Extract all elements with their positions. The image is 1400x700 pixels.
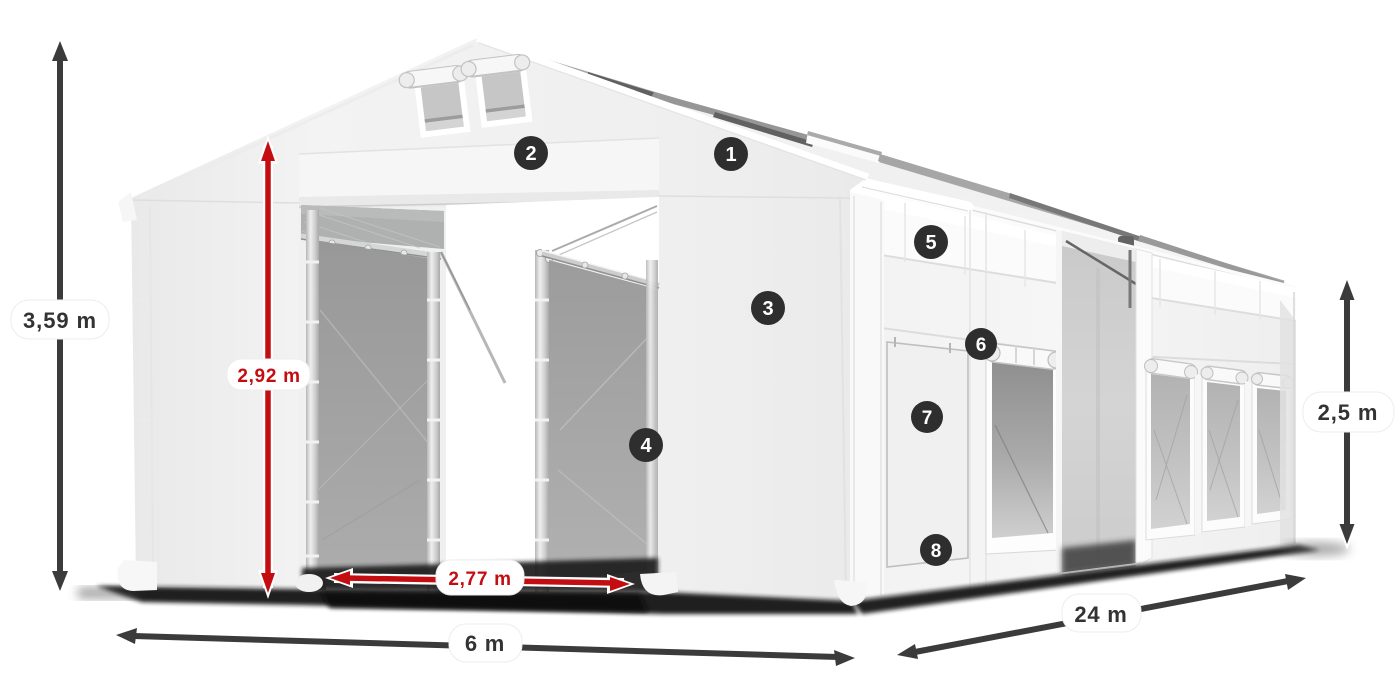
svg-text:1: 1 [725,144,736,166]
svg-text:3: 3 [762,298,773,320]
svg-text:2,77 m: 2,77 m [448,569,511,590]
svg-text:5: 5 [925,232,936,254]
svg-text:6 m: 6 m [465,631,505,656]
svg-text:6: 6 [976,335,987,356]
svg-text:2,92 m: 2,92 m [237,366,300,387]
svg-text:7: 7 [922,408,933,429]
svg-text:2,5 m: 2,5 m [1318,400,1379,425]
svg-text:24 m: 24 m [1074,602,1127,627]
svg-text:2: 2 [525,143,536,165]
svg-text:3,59 m: 3,59 m [23,308,97,333]
svg-text:4: 4 [640,435,652,457]
svg-text:8: 8 [931,541,942,562]
